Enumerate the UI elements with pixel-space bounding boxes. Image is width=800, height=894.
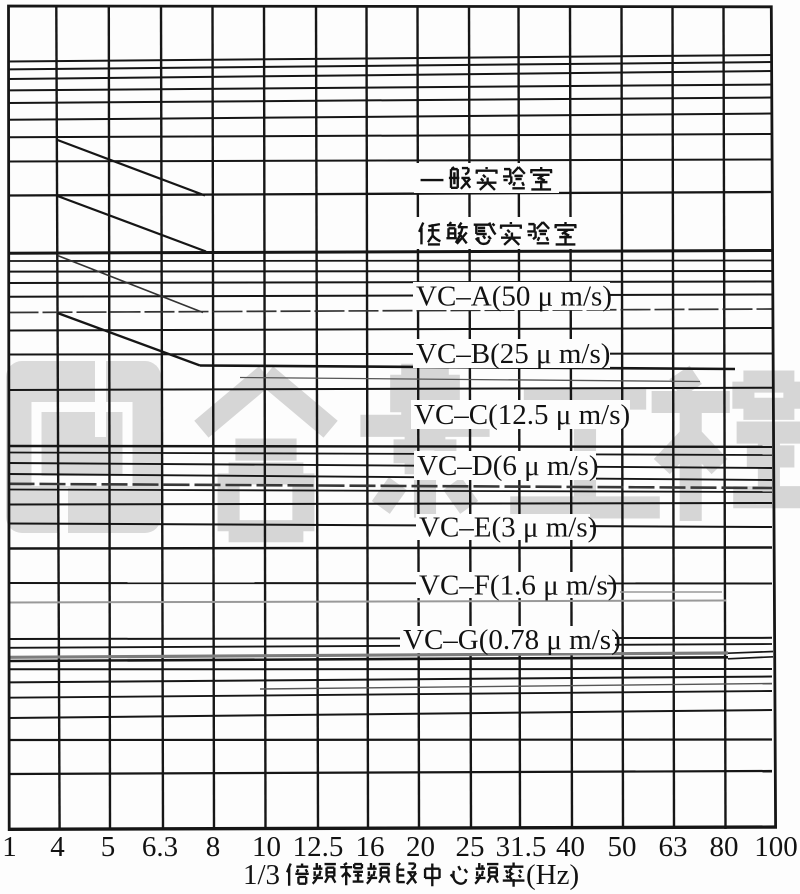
- svg-text:VC–C(12.5 μ m/s): VC–C(12.5 μ m/s): [414, 399, 630, 431]
- svg-text:VC–E(3 μ m/s): VC–E(3 μ m/s): [419, 512, 597, 544]
- svg-text:VC–F(1.6 μ m/s): VC–F(1.6 μ m/s): [419, 570, 617, 602]
- svg-text:(Hz): (Hz): [526, 859, 579, 891]
- svg-text:20: 20: [406, 831, 435, 863]
- svg-text:12.5: 12.5: [293, 831, 344, 863]
- svg-text:1/3: 1/3: [243, 859, 280, 891]
- svg-text:4: 4: [50, 831, 65, 863]
- svg-text:1: 1: [2, 831, 17, 863]
- svg-text:5: 5: [101, 831, 116, 863]
- svg-text:6.3: 6.3: [142, 831, 178, 863]
- svg-text:80: 80: [710, 831, 739, 863]
- svg-text:16: 16: [356, 831, 385, 863]
- svg-text:100: 100: [754, 831, 798, 863]
- svg-text:VC–G(0.78 μ m/s): VC–G(0.78 μ m/s): [403, 624, 621, 656]
- svg-text:25: 25: [456, 831, 485, 863]
- svg-text:50: 50: [608, 831, 637, 863]
- svg-text:VC–D(6 μ m/s): VC–D(6 μ m/s): [417, 450, 599, 482]
- svg-text:8: 8: [206, 831, 221, 863]
- svg-text:63: 63: [659, 831, 688, 863]
- svg-text:VC–B(25 μ m/s): VC–B(25 μ m/s): [416, 338, 610, 370]
- svg-text:VC–A(50 μ m/s): VC–A(50 μ m/s): [416, 281, 612, 313]
